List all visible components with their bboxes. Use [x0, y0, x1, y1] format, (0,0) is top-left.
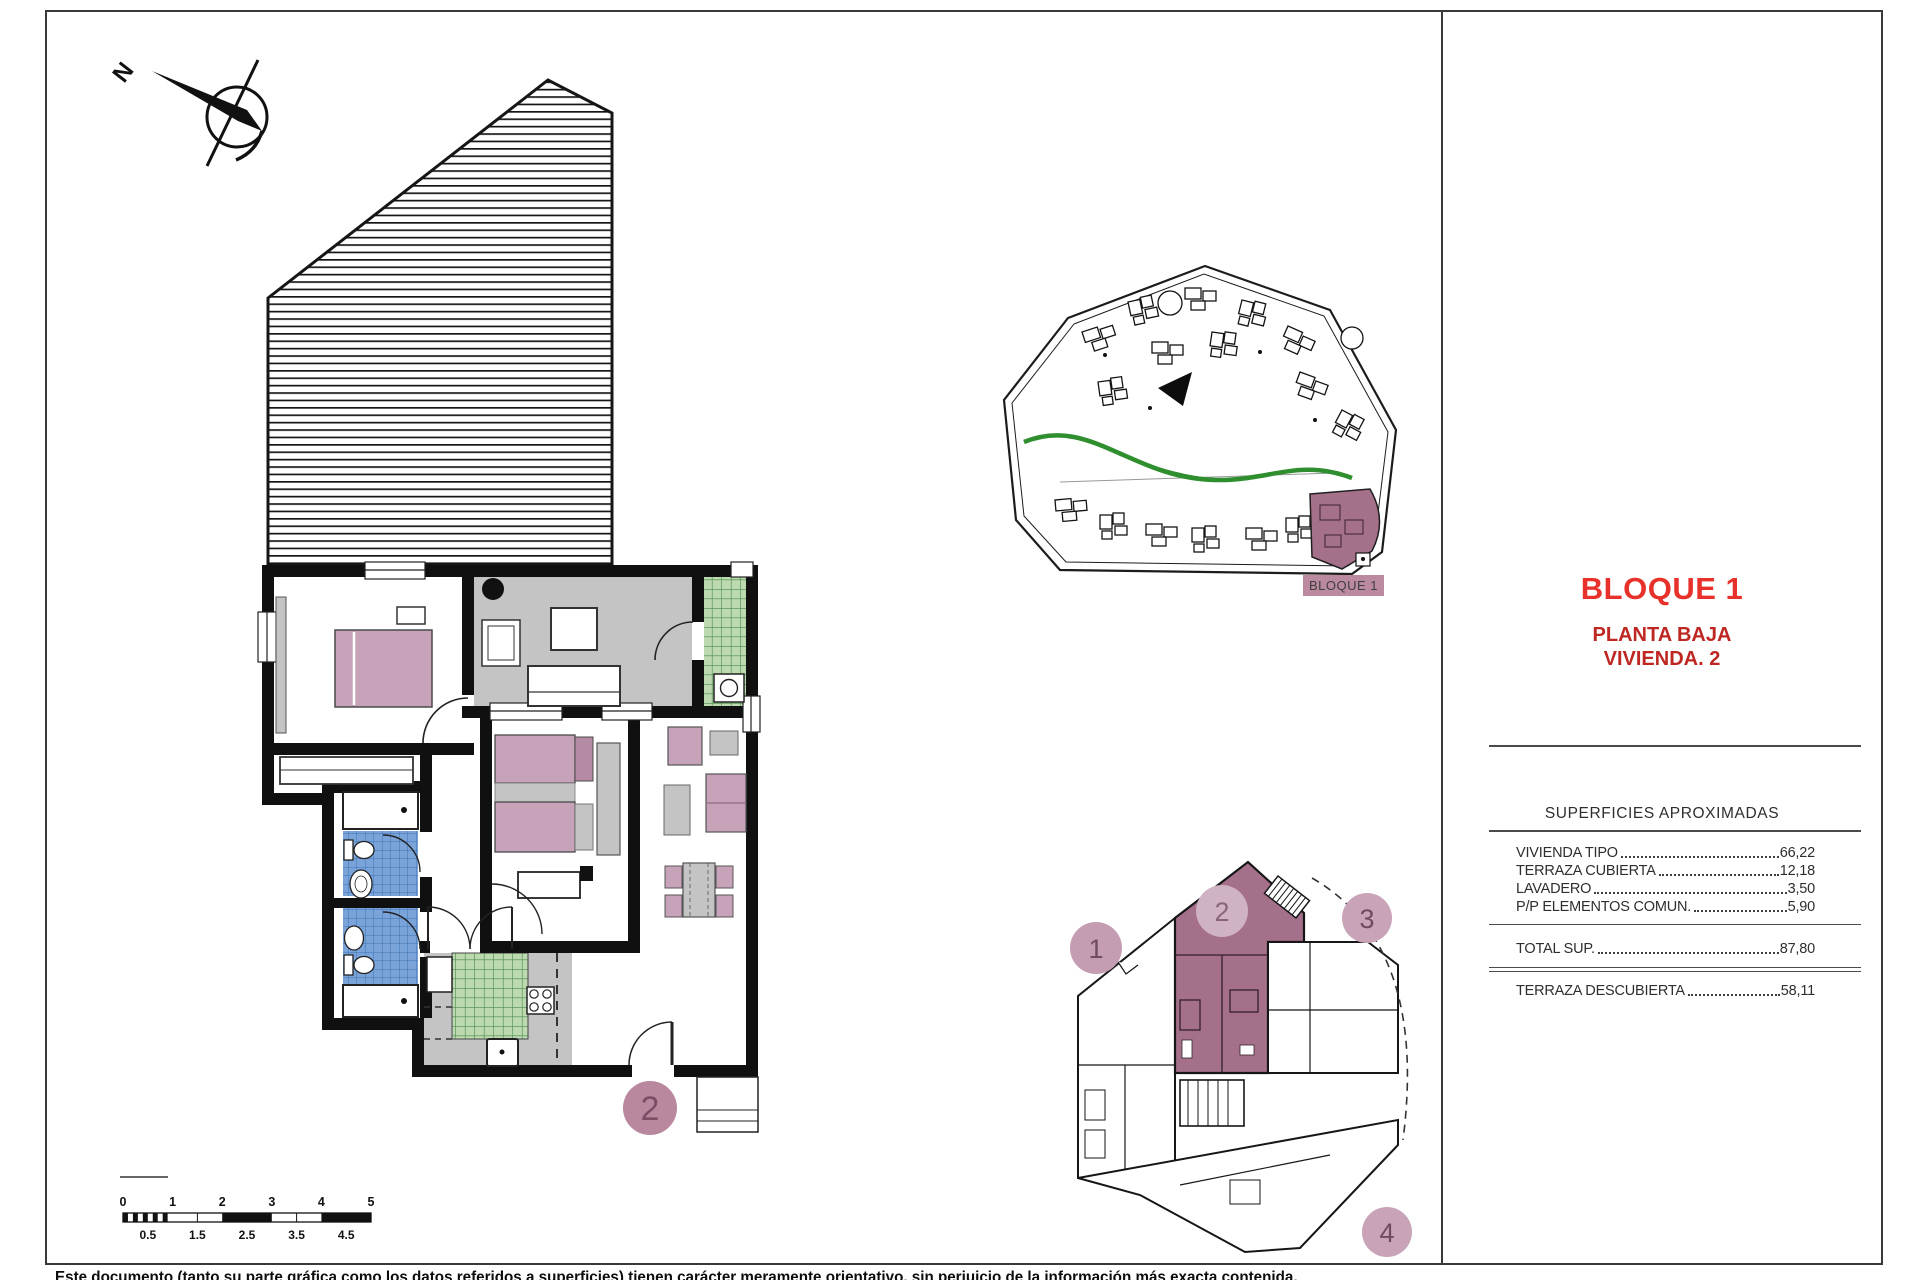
block-title: BLOQUE 1 [1443, 571, 1881, 607]
lounge-chair [664, 785, 690, 835]
table-rule [1489, 971, 1861, 972]
svg-text:5: 5 [368, 1195, 375, 1209]
north-compass: N [107, 57, 267, 166]
dining-table [683, 863, 715, 917]
plan-sheet: N [0, 0, 1920, 1280]
dot-leader [1694, 910, 1786, 912]
key-plan-unit-2-badge: 2 [1196, 885, 1248, 937]
area-value: 12,18 [1780, 863, 1815, 879]
table-rule [1489, 924, 1861, 925]
disclaimer-text: Este documento (tanto su parte gráfica c… [55, 1269, 1858, 1280]
svg-text:3.5: 3.5 [288, 1228, 305, 1242]
coffee-table [551, 608, 597, 650]
dot-leader [1594, 892, 1786, 894]
key-plan-unit-1-badge: 1 [1070, 922, 1122, 974]
key-plan-unit-3-badge: 3 [1342, 893, 1392, 943]
area-label: TERRAZA CUBIERTA [1516, 863, 1656, 879]
washing-machine [714, 674, 744, 702]
scale-bar: 0 1 2 3 4 5 0.5 1.5 2.5 [120, 1177, 375, 1242]
dot-leader [1688, 994, 1780, 996]
area-label: TERRAZA DESCUBIERTA [1516, 983, 1685, 999]
svg-text:2.5: 2.5 [239, 1228, 256, 1242]
double-door-arc-left [428, 907, 470, 949]
svg-text:0.5: 0.5 [139, 1228, 156, 1242]
svg-text:1.5: 1.5 [189, 1228, 206, 1242]
svg-text:0: 0 [120, 1195, 127, 1209]
bedroom-1 [276, 597, 468, 743]
area-label: VIVIENDA TIPO [1516, 845, 1618, 861]
key-plan-unit-4-badge: 4 [1362, 1207, 1412, 1257]
area-row: TERRAZA CUBIERTA 12,18 [1516, 863, 1815, 879]
dresser [518, 872, 580, 898]
entry-door [629, 1022, 672, 1065]
svg-text:4.5: 4.5 [338, 1228, 355, 1242]
closet [276, 597, 286, 733]
svg-text:1: 1 [1088, 934, 1103, 964]
laundry-room [714, 674, 744, 702]
table-rule [1489, 745, 1861, 747]
uncovered-terrace-row: TERRAZA DESCUBIERTA 58,11 [1516, 983, 1815, 999]
side-table [710, 731, 738, 755]
areas-table-heading: SUPERFICIES APROXIMADAS [1443, 805, 1881, 823]
site-location-plan [1004, 266, 1396, 574]
north-label: N [107, 57, 139, 87]
table-rule [1489, 967, 1861, 968]
nightstand [397, 607, 425, 624]
wardrobe [597, 743, 620, 855]
svg-text:1: 1 [169, 1195, 176, 1209]
sofa [528, 666, 620, 706]
area-label: P/P ELEMENTOS COMUN. [1516, 899, 1691, 915]
bed [335, 630, 432, 707]
area-value: 5,90 [1788, 899, 1815, 915]
area-row: VIVIENDA TIPO 66,22 [1516, 845, 1815, 861]
area-value: 58,11 [1781, 983, 1815, 999]
area-row: P/P ELEMENTOS COMUN. 5,90 [1516, 899, 1815, 915]
sink-2 [345, 926, 364, 950]
area-label: TOTAL SUP. [1516, 941, 1595, 957]
dining-area [664, 727, 746, 917]
svg-text:4: 4 [1379, 1218, 1394, 1248]
stair-core [1180, 1080, 1244, 1126]
unit-title: VIVIENDA. 2 [1443, 648, 1881, 671]
bedroom-2 [492, 735, 620, 934]
area-value: 3,50 [1788, 881, 1815, 897]
armchair [668, 727, 702, 765]
key-unit-3 [1268, 942, 1398, 1073]
table-rule [1489, 830, 1861, 832]
toilet-tank-1 [344, 840, 353, 860]
key-plan: 1 2 3 4 [1070, 862, 1412, 1257]
toilet-tank-2 [344, 955, 353, 975]
floor-title: PLANTA BAJA [1443, 624, 1881, 647]
toilet-1 [354, 842, 374, 859]
dot-leader [1621, 856, 1779, 858]
unit-number: 2 [641, 1090, 660, 1128]
unit-number-badge: 2 [623, 1081, 677, 1135]
fridge [427, 957, 452, 992]
porch-steps [697, 1077, 758, 1132]
kitchen-tiles [452, 953, 528, 1039]
area-value: 66,22 [1780, 845, 1815, 861]
total-row: TOTAL SUP. 87,80 [1516, 941, 1815, 957]
svg-text:2: 2 [219, 1195, 226, 1209]
sink-1 [350, 870, 372, 898]
floor-plan: 2 [258, 80, 760, 1135]
dot-leader [1659, 874, 1779, 876]
ceiling-lamp [482, 578, 504, 600]
area-row: LAVADERO 3,50 [1516, 881, 1815, 897]
dot-leader [1598, 952, 1779, 954]
svg-text:2: 2 [1214, 897, 1229, 927]
hall-closet [280, 757, 413, 784]
terrace-descubierta [268, 80, 612, 565]
svg-text:3: 3 [268, 1195, 275, 1209]
svg-text:3: 3 [1359, 904, 1374, 934]
toilet-2 [354, 957, 374, 974]
area-value: 87,80 [1780, 941, 1815, 957]
site-plan-block-label: BLOQUE 1 [1303, 575, 1384, 596]
svg-text:4: 4 [318, 1195, 325, 1209]
area-label: LAVADERO [1516, 881, 1591, 897]
